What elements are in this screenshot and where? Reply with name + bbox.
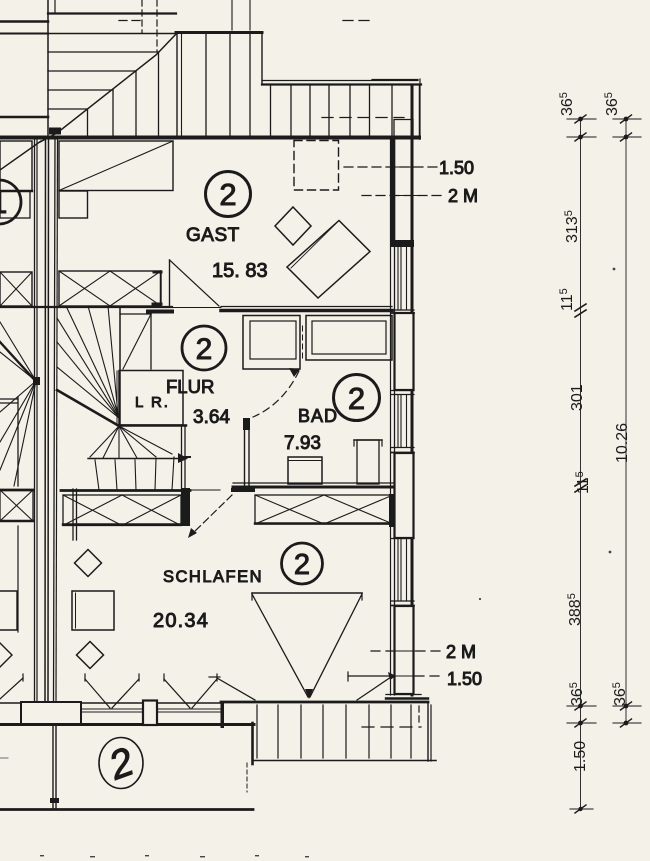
svg-text:1.50: 1.50	[439, 158, 474, 178]
svg-text:L R.: L R.	[135, 394, 170, 411]
svg-text:SCHLAFEN: SCHLAFEN	[163, 568, 263, 586]
svg-text:15. 83: 15. 83	[212, 260, 268, 282]
svg-text:2: 2	[219, 177, 236, 212]
svg-text:2: 2	[294, 549, 310, 581]
svg-text:2 M: 2 M	[446, 642, 476, 662]
svg-text:3.64: 3.64	[193, 407, 230, 428]
svg-text:2 M: 2 M	[448, 186, 478, 206]
svg-text:2: 2	[348, 381, 365, 416]
svg-text:1.50: 1.50	[572, 741, 589, 772]
svg-text:2: 2	[196, 333, 213, 366]
svg-text:FLUR: FLUR	[166, 376, 214, 397]
svg-text:7.93: 7.93	[284, 433, 321, 454]
svg-text:GAST: GAST	[186, 225, 240, 246]
svg-text:BAD: BAD	[298, 406, 338, 426]
svg-text:20.34: 20.34	[153, 610, 209, 632]
svg-text:10.26: 10.26	[614, 423, 631, 463]
svg-text:301: 301	[569, 384, 586, 411]
svg-text:1.50: 1.50	[447, 669, 482, 689]
